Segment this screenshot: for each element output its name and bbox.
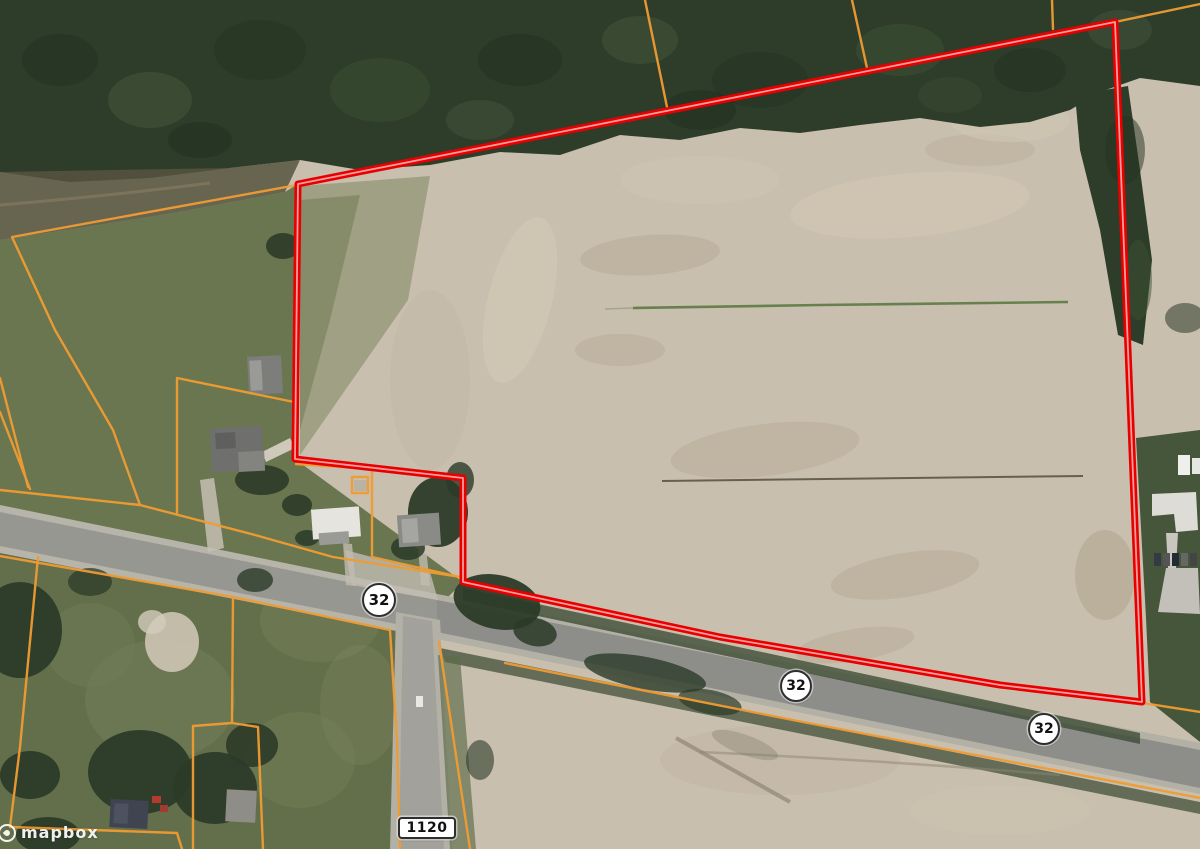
house-roof: [397, 513, 441, 548]
red-vehicle: [152, 796, 161, 803]
route-shield-label: 32: [369, 591, 390, 609]
mapbox-logo-text: mapbox: [21, 823, 99, 842]
route-shield-label: 32: [786, 678, 805, 694]
shed-roof: [354, 480, 367, 491]
route-shield-label: 32: [1034, 721, 1053, 737]
house-roof: [210, 426, 265, 474]
parked-cars: [1154, 553, 1197, 566]
route-shield-32: 32: [780, 670, 812, 702]
map-canvas[interactable]: 32 32 32 1120 mapbox: [0, 0, 1200, 849]
route-shield-32: 32: [1028, 713, 1060, 745]
route-shield-1120: 1120: [398, 817, 456, 839]
vehicle: [416, 696, 423, 707]
mapbox-logo-icon: [0, 824, 16, 842]
mapbox-attribution[interactable]: mapbox: [4, 823, 99, 842]
route-shield-label: 1120: [407, 820, 448, 836]
satellite-imagery: [0, 0, 1200, 849]
house-roof: [247, 355, 283, 395]
red-vehicle: [160, 805, 168, 812]
house-roof: [109, 799, 148, 829]
house-roof: [225, 789, 257, 823]
route-shield-32: 32: [362, 583, 396, 617]
